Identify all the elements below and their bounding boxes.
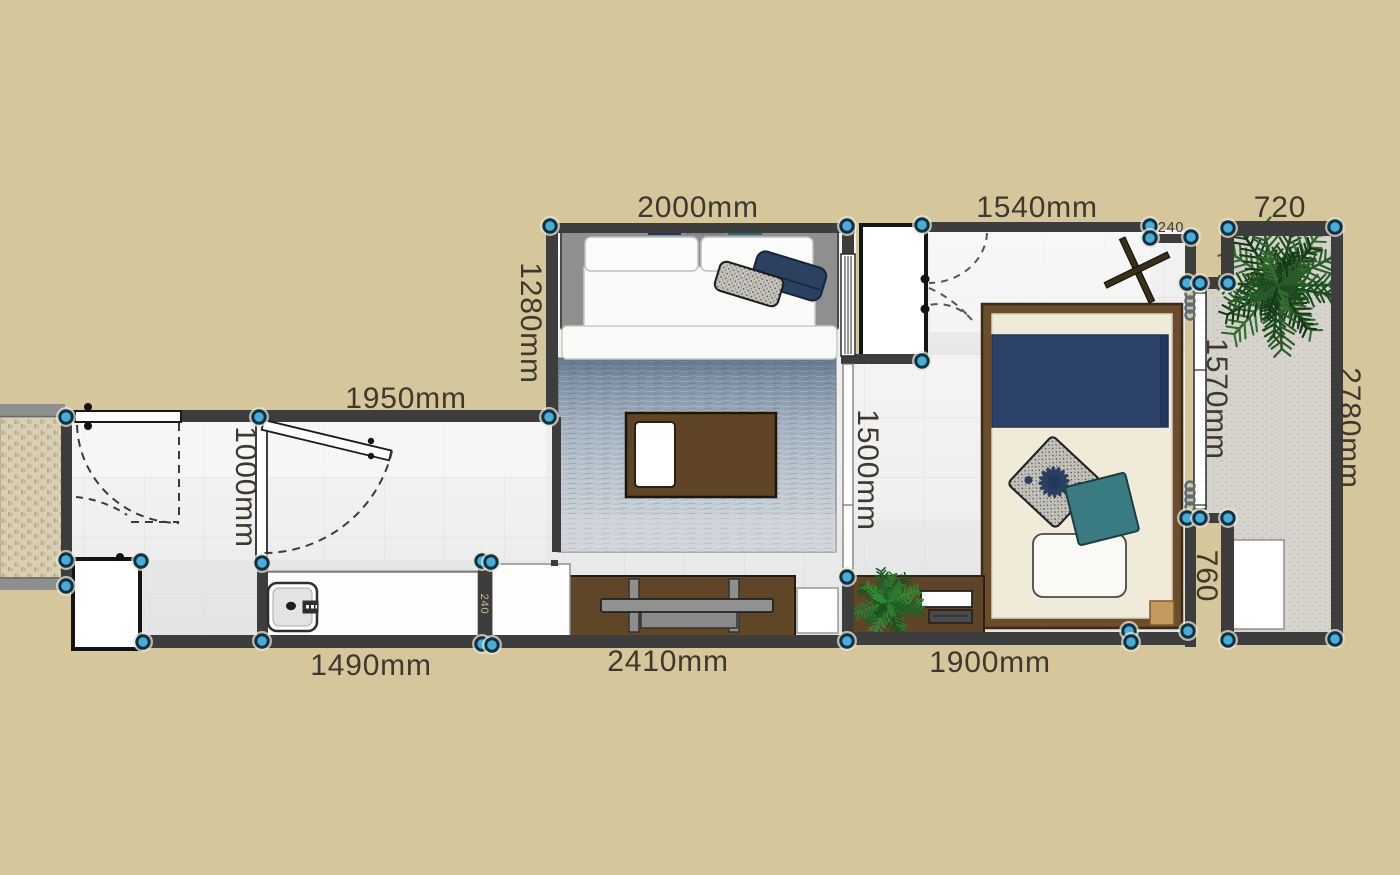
svg-text:2410mm: 2410mm bbox=[607, 645, 729, 678]
svg-text:2780mm: 2780mm bbox=[1333, 367, 1366, 489]
svg-text:240: 240 bbox=[1158, 220, 1185, 236]
svg-text:1900mm: 1900mm bbox=[929, 646, 1051, 679]
svg-text:2000mm: 2000mm bbox=[637, 191, 759, 224]
svg-text:1500mm: 1500mm bbox=[851, 409, 884, 531]
svg-text:1490mm: 1490mm bbox=[310, 649, 432, 682]
svg-text:1570mm: 1570mm bbox=[1200, 338, 1233, 460]
svg-text:720: 720 bbox=[1254, 191, 1306, 224]
svg-text:240: 240 bbox=[478, 594, 490, 615]
svg-text:1540mm: 1540mm bbox=[976, 191, 1098, 224]
svg-text:760: 760 bbox=[1190, 550, 1223, 602]
svg-text:1950mm: 1950mm bbox=[345, 382, 467, 415]
svg-text:1000mm: 1000mm bbox=[229, 426, 262, 548]
svg-text:1280mm: 1280mm bbox=[514, 262, 547, 384]
